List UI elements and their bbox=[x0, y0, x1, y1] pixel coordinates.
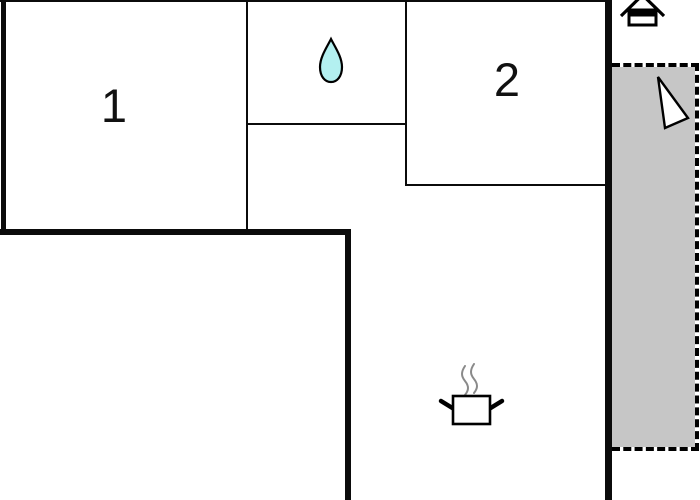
partition-room1-right bbox=[246, 0, 248, 231]
pot-body bbox=[453, 396, 490, 424]
partition-room2-bottom bbox=[405, 184, 605, 186]
cooking-pot-icon bbox=[436, 360, 506, 428]
water-drop-shape bbox=[320, 39, 342, 82]
floorplan-canvas: 1 2 bbox=[0, 0, 700, 500]
house-body-top bbox=[628, 9, 658, 17]
house-icon bbox=[617, 0, 665, 27]
arrow-shape bbox=[658, 77, 688, 128]
arrow-icon bbox=[647, 70, 695, 134]
steam-line-right bbox=[471, 364, 477, 393]
wall-left bbox=[1, 0, 6, 235]
steam-line-left bbox=[462, 366, 468, 395]
room-2-label: 2 bbox=[481, 52, 533, 108]
wall-top bbox=[0, 0, 612, 2]
partition-room2-left bbox=[405, 0, 407, 186]
partition-bathroom-bottom bbox=[246, 123, 407, 125]
wall-right bbox=[605, 0, 612, 500]
room-1-label: 1 bbox=[88, 78, 140, 134]
water-drop-icon bbox=[316, 36, 346, 86]
wall-room1-bottom bbox=[0, 229, 351, 235]
wall-lower-left bbox=[345, 229, 351, 500]
